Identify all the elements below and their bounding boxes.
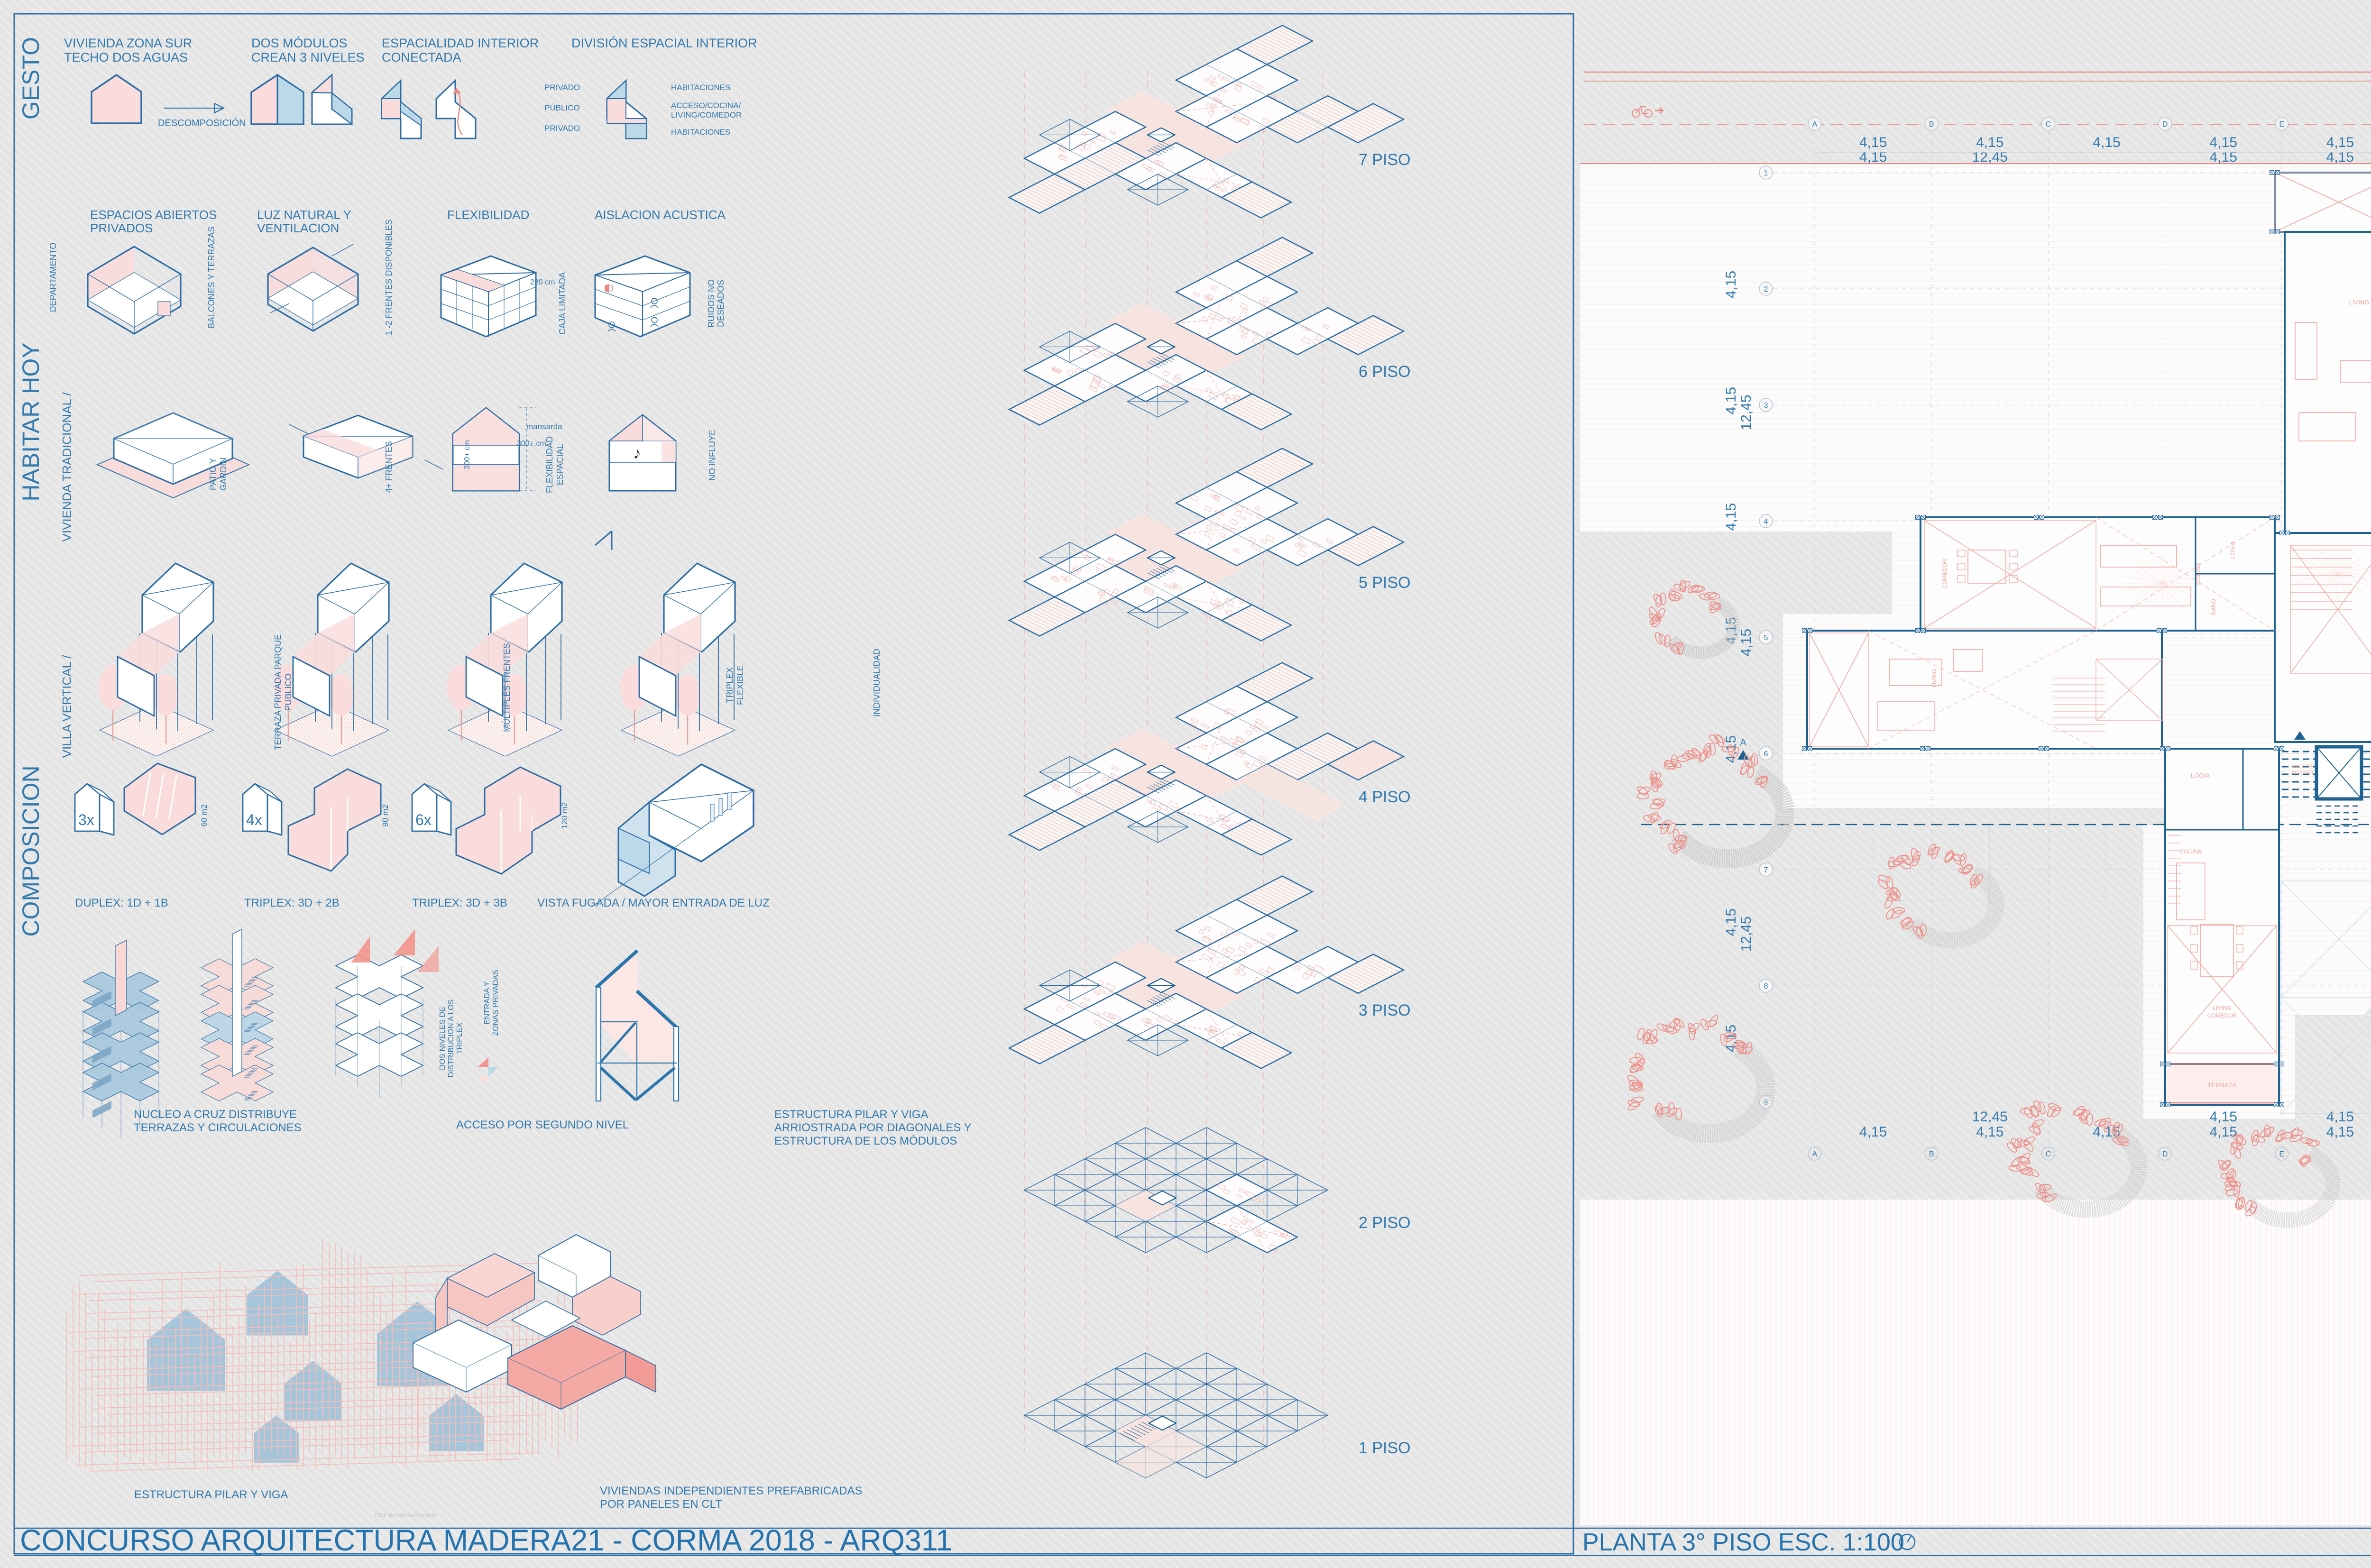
svg-text:60 m2: 60 m2 xyxy=(200,804,209,826)
svg-text:VISTA FUGADA / MAYOR ENTRADA D: VISTA FUGADA / MAYOR ENTRADA DE LUZ xyxy=(537,897,770,909)
svg-text:CONECTADA: CONECTADA xyxy=(382,50,461,64)
svg-text:12,45: 12,45 xyxy=(1972,1109,2008,1125)
svg-text:INDIVIDUALIDAD: INDIVIDUALIDAD xyxy=(872,649,882,717)
svg-text:D: D xyxy=(2162,120,2168,128)
svg-text:4,15: 4,15 xyxy=(1723,271,1739,298)
svg-text:1 -2 FRENTES DISPONIBLES: 1 -2 FRENTES DISPONIBLES xyxy=(384,219,394,335)
svg-text:ESTRUCTURA DE LOS MÓDULOS: ESTRUCTURA DE LOS MÓDULOS xyxy=(774,1135,957,1147)
svg-text:3 PISO: 3 PISO xyxy=(1359,1001,1411,1019)
svg-text:DISTRIBUCION A LOS: DISTRIBUCION A LOS xyxy=(447,999,455,1077)
svg-text:4,15: 4,15 xyxy=(1723,387,1739,414)
svg-text:ESTRUCTURA PILAR Y VIGA: ESTRUCTURA PILAR Y VIGA xyxy=(134,1488,288,1501)
svg-text:4,15: 4,15 xyxy=(2210,1109,2237,1125)
svg-text:4,15: 4,15 xyxy=(2326,135,2354,150)
svg-text:FLEXIBILIDAD: FLEXIBILIDAD xyxy=(545,436,554,493)
svg-text:COMPOSICION: COMPOSICION xyxy=(18,765,44,936)
svg-text:4,15: 4,15 xyxy=(2326,1124,2354,1140)
svg-text:LIVING: LIVING xyxy=(2349,299,2370,306)
svg-text:HABITAR HOY: HABITAR HOY xyxy=(18,342,44,501)
svg-text:LIVING/COMEDOR: LIVING/COMEDOR xyxy=(671,110,742,119)
svg-text:90 m2: 90 m2 xyxy=(381,804,390,826)
svg-text:COCINA: COCINA xyxy=(2180,848,2202,855)
svg-text:C: C xyxy=(2046,1150,2051,1158)
svg-text:12,45: 12,45 xyxy=(1738,394,1754,430)
svg-text:7 PISO: 7 PISO xyxy=(1359,151,1411,169)
svg-text:A: A xyxy=(1812,1150,1818,1158)
svg-text:4,15: 4,15 xyxy=(2210,135,2237,150)
svg-text:TERRAZA: TERRAZA xyxy=(2208,1082,2237,1089)
svg-text:4,15: 4,15 xyxy=(1976,1124,2003,1140)
svg-text:NUCLEO A CRUZ DISTRIBUYE: NUCLEO A CRUZ DISTRIBUYE xyxy=(134,1108,297,1121)
svg-text:PRIVADO: PRIVADO xyxy=(544,124,580,133)
svg-text:3x: 3x xyxy=(78,811,94,828)
svg-text:4,15: 4,15 xyxy=(2210,1124,2237,1140)
svg-text:D: D xyxy=(2162,1150,2168,1158)
svg-text:4,15: 4,15 xyxy=(1723,503,1739,531)
svg-text:4,15: 4,15 xyxy=(1859,135,1887,150)
svg-text:MÚLTIPLES FRENTES: MÚLTIPLES FRENTES xyxy=(502,643,512,732)
svg-text:5 PISO: 5 PISO xyxy=(1359,574,1411,592)
svg-text:ESPACIALIDAD INTERIOR: ESPACIALIDAD INTERIOR xyxy=(382,36,539,50)
svg-text:PUBLICO: PUBLICO xyxy=(284,673,293,711)
svg-text:2: 2 xyxy=(1764,285,1768,293)
svg-text:4,15: 4,15 xyxy=(2326,1109,2354,1125)
svg-text:B: B xyxy=(1929,120,1934,128)
svg-text:VIVIENDAS INDEPENDIENTES PREFA: VIVIENDAS INDEPENDIENTES PREFABRICADAS xyxy=(600,1485,862,1497)
svg-text:CAJA LIMITADA: CAJA LIMITADA xyxy=(558,272,567,335)
svg-text:6x: 6x xyxy=(415,811,432,828)
svg-text:mansarda: mansarda xyxy=(526,422,562,431)
svg-text:ZONAS PRIVADAS: ZONAS PRIVADAS xyxy=(492,970,500,1036)
svg-text:HABITACIONES: HABITACIONES xyxy=(671,128,730,137)
svg-text:E: E xyxy=(2279,120,2284,128)
svg-text:COMEDOR: COMEDOR xyxy=(1941,559,1948,588)
svg-text:12,45: 12,45 xyxy=(1972,149,2008,165)
svg-text:ESPACIOS ABIERTOS: ESPACIOS ABIERTOS xyxy=(90,208,217,222)
svg-text:2 PISO: 2 PISO xyxy=(1359,1214,1411,1232)
svg-text:GESTO: GESTO xyxy=(18,37,44,119)
svg-text:BAÑO: BAÑO xyxy=(2210,599,2217,615)
svg-text:DUPLEX: 1D + 1B: DUPLEX: 1D + 1B xyxy=(75,897,168,909)
svg-text:COMEDOR: COMEDOR xyxy=(2207,1012,2237,1019)
svg-text:PRIVADOS: PRIVADOS xyxy=(90,221,153,235)
svg-text:A: A xyxy=(1740,737,1746,748)
svg-text:CREAN 3 NIVELES: CREAN 3 NIVELES xyxy=(251,50,365,64)
svg-text:VIVIENDA TRADICIONAL /: VIVIENDA TRADICIONAL / xyxy=(60,392,74,542)
svg-text:TERRAZAS Y CIRCULACIONES: TERRAZAS Y CIRCULACIONES xyxy=(134,1121,302,1134)
svg-text:4x: 4x xyxy=(246,811,262,828)
svg-text:DESCOMPOSICIÓN: DESCOMPOSICIÓN xyxy=(158,118,246,128)
svg-text:1: 1 xyxy=(1764,169,1768,177)
svg-text:TRIPLEX: TRIPLEX xyxy=(725,667,735,703)
svg-text:4 PISO: 4 PISO xyxy=(1359,788,1411,806)
svg-text:300+ cm: 300+ cm xyxy=(517,440,546,448)
svg-text:4,15: 4,15 xyxy=(1859,1124,1887,1140)
svg-text:TECHO DOS AGUAS: TECHO DOS AGUAS xyxy=(64,50,188,64)
svg-text:8: 8 xyxy=(1764,982,1768,990)
svg-text:ACCESO/COCINA/: ACCESO/COCINA/ xyxy=(671,101,741,110)
svg-text:ESTRUCTURA PILAR Y VIGA: ESTRUCTURA PILAR Y VIGA xyxy=(774,1108,928,1121)
svg-text:5: 5 xyxy=(1764,634,1768,642)
svg-text:LOGIA: LOGIA xyxy=(2191,772,2210,779)
svg-text:ARRIOSTRADA POR DIAGONALES Y: ARRIOSTRADA POR DIAGONALES Y xyxy=(774,1121,972,1134)
svg-text:NO INFLUYE: NO INFLUYE xyxy=(708,430,717,481)
svg-text:12,45: 12,45 xyxy=(1738,916,1754,952)
svg-text:4,15: 4,15 xyxy=(1723,908,1739,936)
svg-text:AISLACION ACUSTICA: AISLACION ACUSTICA xyxy=(595,208,726,222)
svg-text:PATIO Y: PATIO Y xyxy=(208,458,218,490)
svg-text:B: B xyxy=(1929,1150,1934,1158)
svg-text:A: A xyxy=(1812,120,1818,128)
svg-text:TRIPLEX: TRIPLEX xyxy=(456,1022,464,1054)
svg-text:ACCESO POR SEGUNDO NIVEL: ACCESO POR SEGUNDO NIVEL xyxy=(456,1119,629,1131)
svg-text:6 PISO: 6 PISO xyxy=(1359,363,1411,381)
svg-text:VIVIENDA ZONA SUR: VIVIENDA ZONA SUR xyxy=(64,36,192,50)
svg-text:GSEducationalVersion: GSEducationalVersion xyxy=(375,1512,436,1519)
svg-text:120 m2: 120 m2 xyxy=(560,802,569,829)
svg-text:4,15: 4,15 xyxy=(1859,149,1887,165)
svg-text:FLEXIBLE: FLEXIBLE xyxy=(735,665,745,705)
svg-text:DEPARTAMENTO: DEPARTAMENTO xyxy=(48,243,58,312)
svg-text:4,15: 4,15 xyxy=(2093,135,2120,150)
svg-text:LUZ NATURAL Y: LUZ NATURAL Y xyxy=(257,208,351,222)
svg-text:1 PISO: 1 PISO xyxy=(1359,1439,1411,1457)
svg-text:RUIDOS NO: RUIDOS NO xyxy=(707,279,716,328)
svg-text:4,15: 4,15 xyxy=(1738,629,1754,656)
svg-text:GARDIN: GARDIN xyxy=(219,458,228,491)
svg-text:ESPACIAL: ESPACIAL xyxy=(555,444,565,486)
svg-text:ACCESO: ACCESO xyxy=(2291,770,2314,776)
svg-text:LIVING: LIVING xyxy=(2213,1005,2231,1011)
svg-text:DOS NIVELES DE: DOS NIVELES DE xyxy=(439,1007,447,1070)
svg-text:TRIPLEX: 3D + 2B: TRIPLEX: 3D + 2B xyxy=(244,897,340,909)
svg-text:VILLA VERTICAL /: VILLA VERTICAL / xyxy=(60,655,74,758)
svg-text:4,15: 4,15 xyxy=(2326,149,2354,165)
svg-text:POR PANELES EN CLT: POR PANELES EN CLT xyxy=(600,1498,722,1511)
svg-text:PRIVADO: PRIVADO xyxy=(544,83,580,92)
svg-text:7: 7 xyxy=(1764,866,1768,874)
svg-text:DESEADOS: DESEADOS xyxy=(716,280,726,327)
svg-text:4,15: 4,15 xyxy=(1976,135,2003,150)
svg-text:6: 6 xyxy=(1764,750,1768,758)
svg-text:4: 4 xyxy=(1764,518,1768,526)
svg-text:DIVISIÓN ESPACIAL INTERIOR: DIVISIÓN ESPACIAL INTERIOR xyxy=(571,36,757,50)
svg-text:DOS MÓDULOS: DOS MÓDULOS xyxy=(251,36,348,50)
svg-text:TRIPLEX: 3D + 3B: TRIPLEX: 3D + 3B xyxy=(412,897,507,909)
svg-text:220 cm: 220 cm xyxy=(530,278,555,286)
svg-text:HABITACIONES: HABITACIONES xyxy=(671,83,730,92)
svg-text:TERRAZA PRIVADA PARQUE: TERRAZA PRIVADA PARQUE xyxy=(273,634,283,750)
svg-text:♪: ♪ xyxy=(633,444,641,462)
svg-text:LIVING: LIVING xyxy=(1931,669,1938,687)
svg-text:3: 3 xyxy=(1764,402,1768,410)
svg-text:FLEXIBILIDAD: FLEXIBILIDAD xyxy=(447,208,529,222)
svg-text:VENTILACION: VENTILACION xyxy=(257,221,339,235)
svg-text:BALCONES Y TERRAZAS: BALCONES Y TERRAZAS xyxy=(207,226,216,328)
svg-text:C: C xyxy=(2046,120,2051,128)
svg-text:4,15: 4,15 xyxy=(2210,149,2237,165)
svg-text:ENTRADA Y: ENTRADA Y xyxy=(483,981,491,1024)
svg-text:CONCURSO ARQUITECTURA MADERA21: CONCURSO ARQUITECTURA MADERA21 - CORMA 2… xyxy=(20,1524,952,1557)
svg-text:PLANTA 3° PISO ESC. 1:100: PLANTA 3° PISO ESC. 1:100 xyxy=(1582,1529,1904,1556)
svg-text:E: E xyxy=(2279,1150,2284,1158)
svg-text:300+ cm: 300+ cm xyxy=(463,440,471,469)
svg-text:4,15: 4,15 xyxy=(1723,735,1739,763)
svg-text:4+ FRENTES: 4+ FRENTES xyxy=(384,441,394,493)
svg-text:PÚBLICO: PÚBLICO xyxy=(544,103,580,112)
svg-text:HALL DE: HALL DE xyxy=(2291,764,2313,770)
